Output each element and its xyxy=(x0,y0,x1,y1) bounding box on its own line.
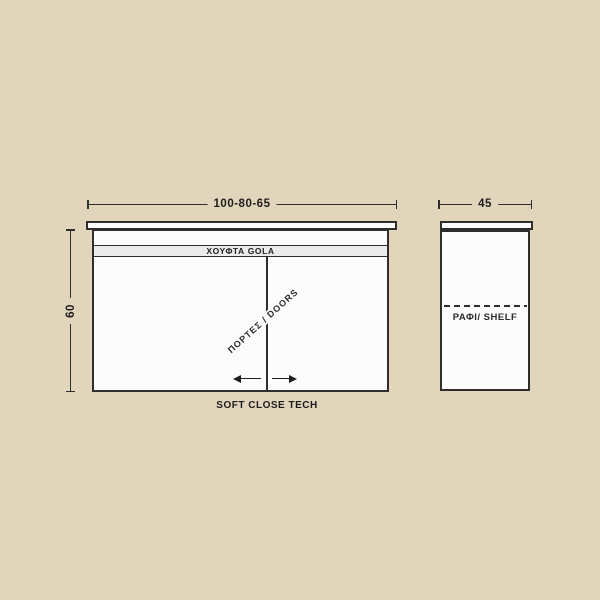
dimension-tick xyxy=(531,200,533,209)
front-height-dimension: 60 xyxy=(63,229,78,392)
side-countertop xyxy=(440,221,533,230)
arrow-shaft xyxy=(272,378,290,380)
right-arrow-icon xyxy=(289,375,297,383)
front-width-dimension-label: 100-80-65 xyxy=(208,197,277,212)
dimension-tick xyxy=(396,200,398,209)
dimension-tick xyxy=(438,200,440,209)
soft-close-caption: SOFT CLOSE TECH xyxy=(216,400,317,411)
dimension-tick xyxy=(87,200,89,209)
side-depth-dimension: 45 xyxy=(438,197,532,212)
side-cabinet-body xyxy=(440,230,530,391)
front-width-dimension: 100-80-65 xyxy=(87,197,397,212)
gola-handle-band: ΧΟΥΦΤΑ GOLA xyxy=(94,245,387,257)
front-height-dimension-label: 60 xyxy=(65,298,77,324)
drawing-canvas: 100-80-65 60 ΧΟΥΦΤΑ GOLA ΠΟΡΤΕΣ / DOORS xyxy=(0,0,600,600)
shelf-dashed-line xyxy=(444,305,527,307)
gola-handle-label: ΧΟΥΦΤΑ GOLA xyxy=(206,246,274,256)
front-countertop xyxy=(86,221,397,230)
arrow-shaft xyxy=(240,378,261,380)
dimension-tick xyxy=(66,229,75,231)
shelf-label: ΡΑΦΙ/ SHELF xyxy=(453,312,518,323)
side-depth-dimension-label: 45 xyxy=(472,197,498,212)
dimension-tick xyxy=(66,391,75,393)
